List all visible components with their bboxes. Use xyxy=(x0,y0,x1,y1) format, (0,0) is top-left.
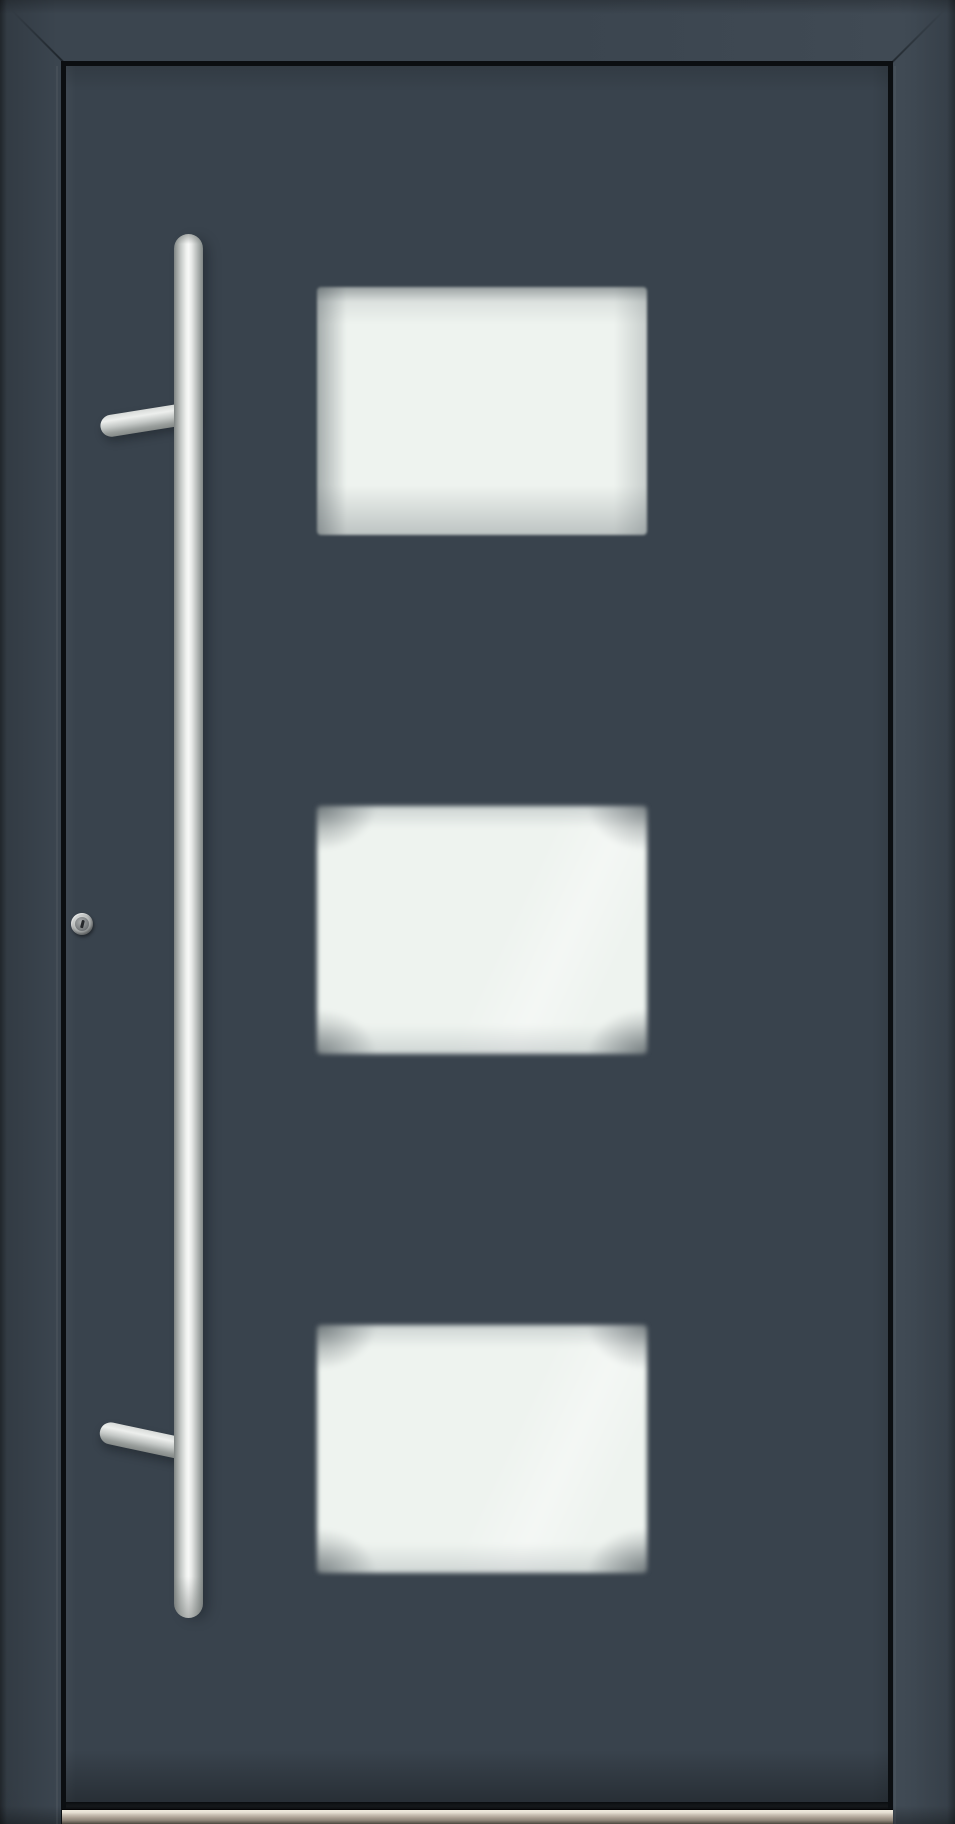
keyhole-icon xyxy=(80,920,85,928)
lock-cylinder-face xyxy=(75,917,89,931)
entrance-door-photo xyxy=(0,0,955,1824)
lock-cylinder xyxy=(71,913,93,935)
threshold-strip xyxy=(62,1810,893,1824)
glass-panel-top xyxy=(317,287,647,535)
glass-panel-middle xyxy=(317,806,647,1054)
frame-gap-right xyxy=(888,61,893,1824)
pull-handle-bar xyxy=(174,234,203,1618)
glass-panel-bottom xyxy=(317,1325,647,1573)
